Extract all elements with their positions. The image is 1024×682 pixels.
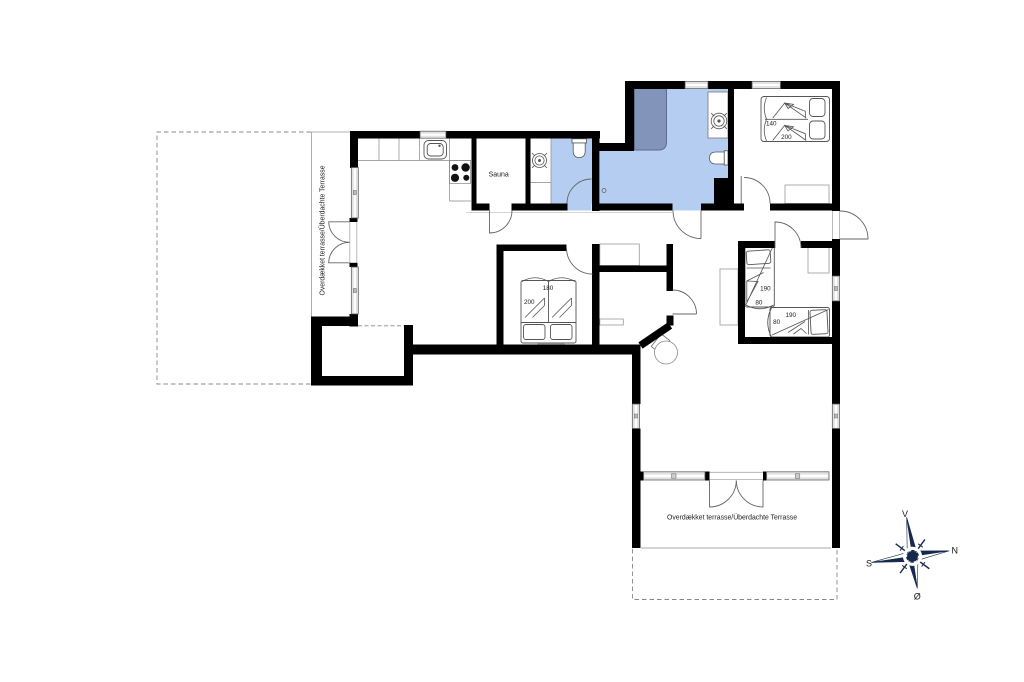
- svg-text:S: S: [866, 558, 872, 568]
- svg-text:V: V: [902, 509, 908, 519]
- svg-text:80: 80: [755, 299, 763, 306]
- svg-text:200: 200: [524, 299, 535, 306]
- svg-text:Ø: Ø: [914, 592, 921, 602]
- svg-text:80: 80: [773, 319, 781, 326]
- svg-text:190: 190: [786, 312, 797, 319]
- svg-text:200: 200: [781, 134, 792, 141]
- svg-text:140: 140: [766, 121, 777, 128]
- svg-text:190: 190: [760, 285, 771, 292]
- svg-text:Overdækket terrasse/Überdachte: Overdækket terrasse/Überdachte Terrasse: [667, 514, 797, 522]
- svg-text:Overdækket terrasse/Überdachte: Overdækket terrasse/Überdachte Terrasse: [319, 165, 327, 295]
- svg-text:180: 180: [543, 285, 554, 292]
- svg-text:Sauna: Sauna: [489, 172, 509, 179]
- svg-text:N: N: [951, 546, 958, 556]
